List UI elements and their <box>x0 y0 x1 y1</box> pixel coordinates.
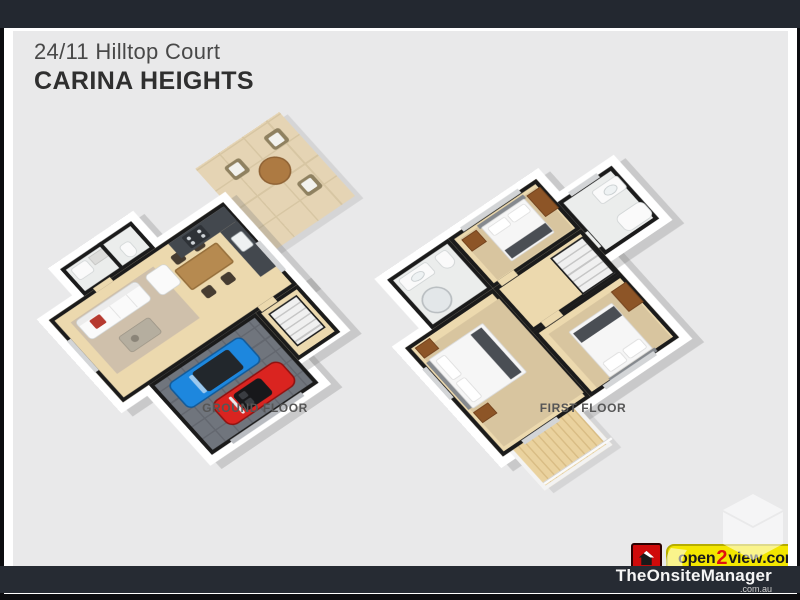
page: 24/11 Hilltop Court CARINA HEIGHTS <box>4 28 797 594</box>
house-icon <box>631 543 662 566</box>
logo-wordmark: open2view.com® <box>666 544 788 566</box>
first-floor-label: FIRST FLOOR <box>493 401 673 415</box>
open2view-logo: open2view.com® <box>631 542 788 566</box>
outdoor-chair <box>223 157 251 181</box>
first-floor-plan <box>419 166 737 467</box>
logo-domain: .com <box>762 550 788 567</box>
shower <box>415 281 458 319</box>
kitchen-sink <box>230 230 255 252</box>
top-frame-bar <box>0 0 800 28</box>
canvas: 24/11 Hilltop Court CARINA HEIGHTS <box>13 31 788 566</box>
footer-brand-domain: .com.au <box>616 585 772 594</box>
pillow <box>487 216 512 236</box>
footer-brand-name: TheOnsiteManager <box>616 567 772 584</box>
logo-suffix: view <box>728 550 762 567</box>
outdoor-table <box>252 151 298 191</box>
pillow <box>507 203 532 223</box>
floorplan-slide: { "header": { "address_line": "24/11 Hil… <box>0 0 800 600</box>
ground-floor-label: GROUND FLOOR <box>165 401 345 415</box>
ground-floor-plan <box>69 152 413 431</box>
dining-chair <box>220 271 237 286</box>
toilet <box>433 249 458 271</box>
toilet <box>118 240 139 259</box>
basin <box>409 269 427 284</box>
logo-prefix: open <box>678 550 715 567</box>
suburb-line: CARINA HEIGHTS <box>34 67 254 96</box>
basin <box>601 182 620 197</box>
logo-digit: 2 <box>716 547 727 566</box>
title-block: 24/11 Hilltop Court CARINA HEIGHTS <box>34 39 254 96</box>
stove <box>181 224 210 248</box>
first-floor-iso <box>360 128 788 503</box>
address-line: 24/11 Hilltop Court <box>34 39 254 65</box>
dining-chair <box>200 284 217 299</box>
footer-brand: TheOnsiteManager .com.au <box>616 567 772 594</box>
footer-bar: TheOnsiteManager .com.au <box>0 566 800 593</box>
balustrade <box>543 437 613 485</box>
outdoor-chair <box>296 173 324 197</box>
outdoor-chair <box>263 127 291 151</box>
